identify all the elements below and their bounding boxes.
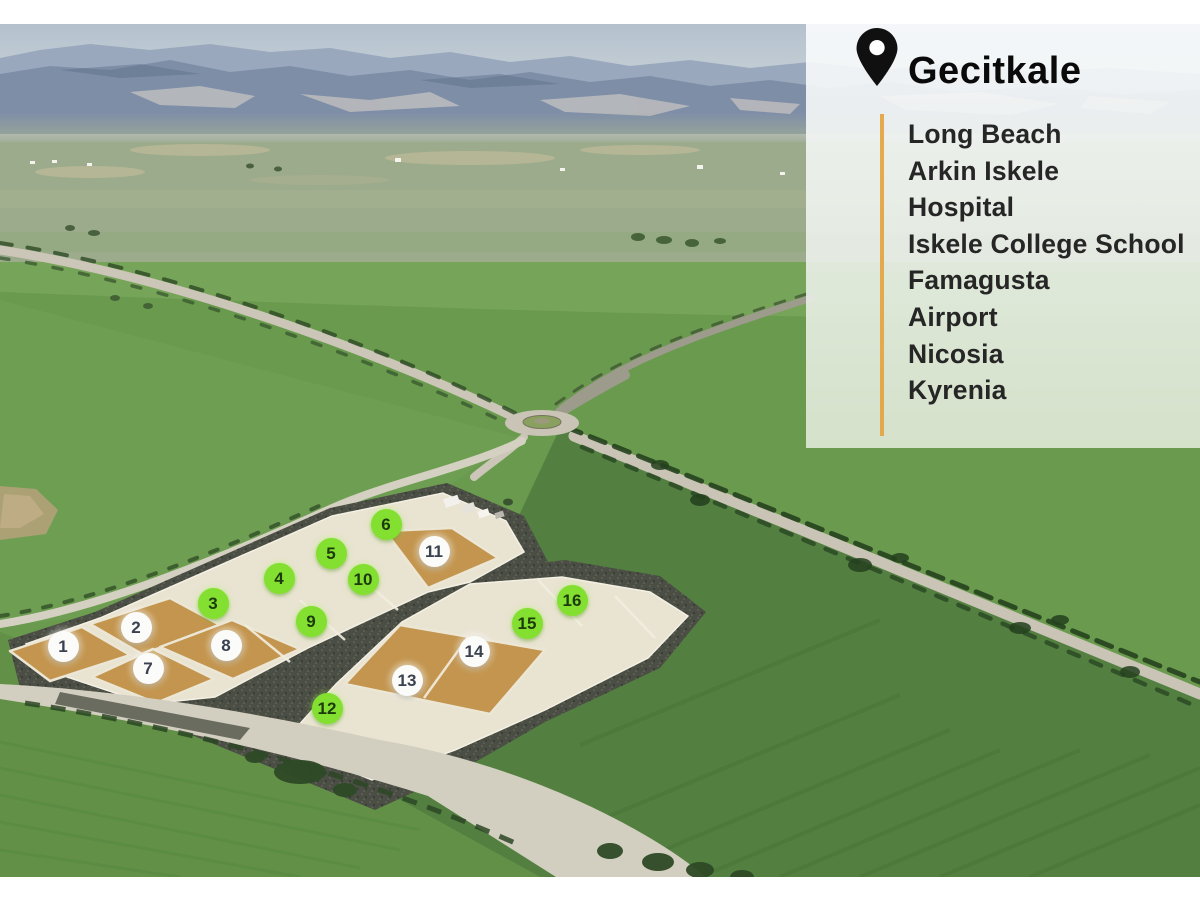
plot-marker-14: 14 xyxy=(459,636,490,667)
location-panel: Gecitkale Long BeachArkin IskeleHospital… xyxy=(806,24,1200,448)
accent-divider xyxy=(880,114,884,436)
place-item: Nicosia xyxy=(908,336,1185,373)
place-item: Iskele College School xyxy=(908,226,1185,263)
plot-marker-13: 13 xyxy=(392,665,423,696)
plot-marker-6: 6 xyxy=(371,509,402,540)
place-item: Airport xyxy=(908,299,1185,336)
map-pin-icon xyxy=(856,28,898,86)
places-list: Long BeachArkin IskeleHospitalIskele Col… xyxy=(908,116,1185,409)
place-item: Long Beach xyxy=(908,116,1185,153)
plot-marker-7: 7 xyxy=(133,653,164,684)
plot-marker-2: 2 xyxy=(121,612,152,643)
place-item: Famagusta xyxy=(908,262,1185,299)
plot-marker-5: 5 xyxy=(316,538,347,569)
plot-marker-8: 8 xyxy=(211,630,242,661)
letterbox-bar-top xyxy=(0,0,1200,24)
plot-marker-11: 11 xyxy=(419,536,450,567)
plot-marker-10: 10 xyxy=(348,564,379,595)
plot-marker-16: 16 xyxy=(557,585,588,616)
listing-image: 12345678910111213141516 Gecitkale Long B… xyxy=(0,0,1200,900)
plot-marker-1: 1 xyxy=(48,631,79,662)
plot-marker-4: 4 xyxy=(264,563,295,594)
place-item: Arkin Iskele xyxy=(908,153,1185,190)
place-item: Hospital xyxy=(908,189,1185,226)
plot-marker-3: 3 xyxy=(198,588,229,619)
location-title: Gecitkale xyxy=(908,50,1082,93)
plot-marker-15: 15 xyxy=(512,608,543,639)
plot-marker-9: 9 xyxy=(296,606,327,637)
roundabout xyxy=(505,410,579,436)
letterbox-bar-bottom xyxy=(0,877,1200,900)
place-item: Kyrenia xyxy=(908,372,1185,409)
plot-marker-12: 12 xyxy=(312,693,343,724)
